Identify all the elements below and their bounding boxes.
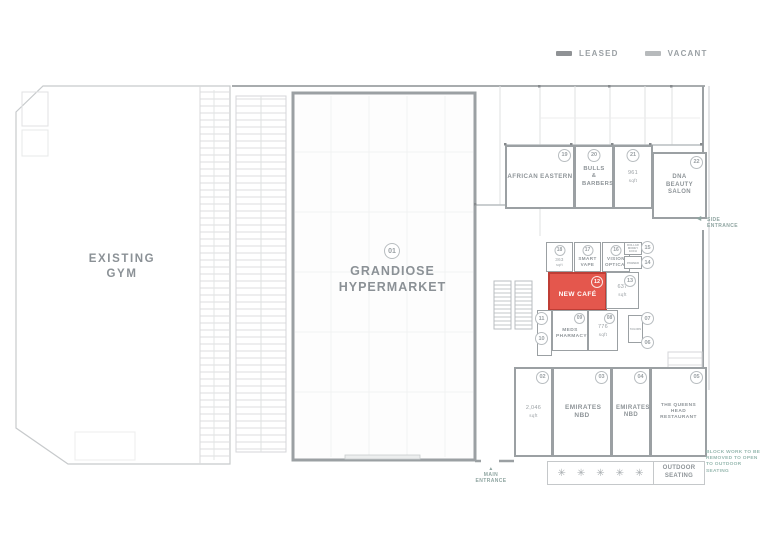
unit-22-dna-beauty-salon: 22 DNA BEAUTY SALON (652, 152, 707, 219)
side-entrance-arrow-icon: ◀ (695, 216, 703, 223)
seating-symbols: ✳ ✳ ✳ ✳ ✳ (548, 462, 653, 484)
unit-number-14: 14 (641, 256, 654, 269)
unit-03-emirates-nbd: 03 EMIRATES NBD (552, 367, 612, 457)
legend-vacant: VACANT (645, 49, 708, 58)
table-icon: ✳ (635, 468, 643, 479)
unit-20-bulls-barbers: 20 BULLS & BARBERS (574, 145, 614, 209)
table-icon: ✳ (558, 468, 566, 479)
unit-number-19: 19 (558, 149, 571, 162)
unit-number-02: 02 (536, 371, 549, 384)
floor-plan: LEASED VACANT EXISTING GYM 01 GRANDIOSE … (0, 0, 765, 541)
unit-number-15: 15 (641, 241, 654, 254)
hypermarket-label: GRANDIOSE HYPERMARKET (325, 263, 460, 296)
unit-04-emirates-nbd: 04 EMIRATES NBD (611, 367, 651, 457)
block-work-note: BLOCK WORK TO BE REMOVED TO OPEN TO OUTD… (706, 450, 762, 475)
unit-number-13: 13 (624, 275, 636, 287)
table-icon: ✳ (596, 468, 604, 479)
legend-leased: LEASED (556, 49, 619, 58)
vacant-label: VACANT (668, 49, 708, 58)
unit-05-queens-head: 05 THE QUEENS HEAD RESTAURANT (650, 367, 707, 457)
side-entrance-arrow-wrap: ◀ (695, 216, 703, 223)
unit-21-vacant: 21 961sqft (613, 145, 653, 209)
unit-09-meds-pharmacy: 09 MEDS PHARMACY (552, 310, 588, 351)
unit-number-09: 09 (574, 313, 585, 324)
unit-08-vacant: 08 776sqft (588, 310, 618, 351)
unit-number-01: 01 (384, 243, 400, 259)
unit-19-african-eastern: 19 AFRICAN EASTERN (505, 145, 575, 209)
main-entrance: ▲ MAIN ENTRANCE (470, 466, 512, 484)
outdoor-seating-label: OUTDOOR SEATING (653, 462, 704, 484)
unit-17-smart-vape: 17 SMART VAPE (574, 242, 601, 272)
unit-number-05: 05 (690, 371, 703, 384)
main-entrance-label: MAIN ENTRANCE (476, 472, 507, 484)
unit-number-18: 18 (554, 245, 565, 256)
unit-12-new-cafe: 12 NEW CAFÉ (548, 272, 607, 311)
side-entrance-label: SIDE ENTRANCE (707, 217, 741, 229)
unit-13-vacant: 13 637sqft (606, 272, 639, 309)
unit-number-07: 07 (641, 312, 654, 325)
unit-number-22: 22 (690, 156, 703, 169)
unit-number-03: 03 (595, 371, 608, 384)
unit-number-06: 06 (641, 336, 654, 349)
unit-number-16: 16 (611, 245, 622, 256)
unit-number-20: 20 (588, 149, 601, 162)
leased-swatch (556, 51, 572, 56)
unit-number-04: 04 (634, 371, 647, 384)
vacant-swatch (645, 51, 661, 56)
unit-number-10: 10 (535, 332, 548, 345)
table-icon: ✳ (577, 468, 585, 479)
unit-02-vacant: 02 2,046sqft (514, 367, 553, 457)
unit-15-kiosk: DOLLAR MONEY EXCH (624, 242, 642, 255)
unit-number-08: 08 (604, 313, 615, 324)
unit-number-12: 12 (591, 276, 603, 288)
unit-14-kiosk: PAWNED (624, 256, 642, 269)
unit-number-17: 17 (582, 245, 593, 256)
table-icon: ✳ (616, 468, 624, 479)
existing-gym-label: EXISTING GYM (72, 252, 172, 282)
unit-number-11: 11 (535, 312, 548, 325)
unit-18-vacant: 18 363sqft (546, 242, 573, 272)
legend: LEASED VACANT (556, 49, 708, 58)
unit-number-21: 21 (627, 149, 640, 162)
outdoor-seating-area: ✳ ✳ ✳ ✳ ✳ OUTDOOR SEATING (547, 461, 705, 485)
leased-label: LEASED (579, 49, 619, 58)
